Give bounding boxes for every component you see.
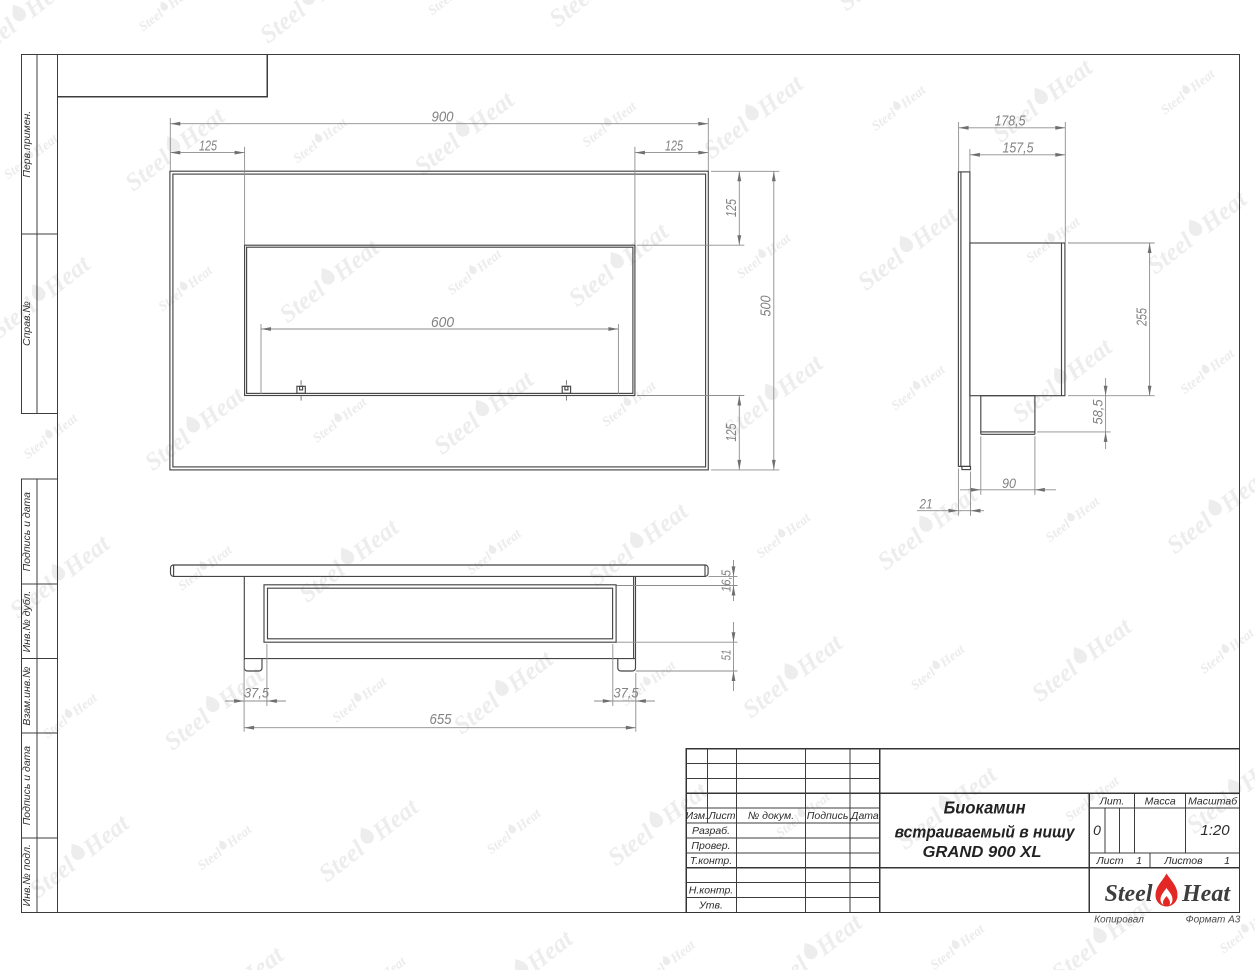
svg-text:125: 125 xyxy=(665,139,684,155)
svg-text:Инв.№ дубл.: Инв.№ дубл. xyxy=(21,591,33,653)
svg-text:Копировал: Копировал xyxy=(1094,915,1144,926)
svg-text:Формат А3: Формат А3 xyxy=(1186,915,1241,926)
svg-text:Масса: Масса xyxy=(1145,795,1176,807)
svg-text:900: 900 xyxy=(432,109,455,126)
svg-text:Биокамин: Биокамин xyxy=(944,798,1026,818)
svg-text:Н.контр.: Н.контр. xyxy=(689,885,733,897)
svg-text:Инв.№ подл.: Инв.№ подл. xyxy=(21,844,33,906)
svg-text:125: 125 xyxy=(724,423,740,442)
svg-text:Справ.№: Справ.№ xyxy=(21,301,33,346)
svg-text:GRAND 900 XL: GRAND 900 XL xyxy=(923,844,1042,861)
svg-text:встраиваемый в нишу: встраиваемый в нишу xyxy=(895,824,1076,842)
svg-text:Изм.: Изм. xyxy=(686,810,708,822)
svg-text:0: 0 xyxy=(1093,822,1101,838)
svg-text:51: 51 xyxy=(718,650,733,661)
svg-text:Перв.примен.: Перв.примен. xyxy=(21,111,33,178)
svg-text:37,5: 37,5 xyxy=(614,685,639,701)
svg-text:Провер.: Провер. xyxy=(691,840,730,852)
svg-text:Steel: Steel xyxy=(1105,881,1153,907)
svg-text:Heat: Heat xyxy=(1181,881,1231,907)
svg-text:Подпись и дата: Подпись и дата xyxy=(21,746,33,826)
svg-text:Подпись и дата: Подпись и дата xyxy=(21,492,33,572)
svg-text:1: 1 xyxy=(1224,855,1230,867)
svg-text:Лист: Лист xyxy=(707,810,735,822)
svg-text:1:20: 1:20 xyxy=(1200,822,1230,839)
svg-text:Масштаб: Масштаб xyxy=(1188,795,1238,807)
svg-text:Взам.инв.№: Взам.инв.№ xyxy=(21,666,33,725)
svg-text:Лист: Лист xyxy=(1095,855,1123,867)
svg-text:Утв.: Утв. xyxy=(698,900,723,912)
svg-text:37,5: 37,5 xyxy=(244,685,269,701)
svg-text:16,5: 16,5 xyxy=(719,570,733,592)
svg-text:Т.контр.: Т.контр. xyxy=(690,855,732,867)
svg-text:255: 255 xyxy=(1134,307,1150,326)
svg-text:21: 21 xyxy=(919,496,933,512)
svg-text:Дата: Дата xyxy=(850,810,879,822)
svg-text:Листов: Листов xyxy=(1163,855,1203,867)
svg-text:№ докум.: № докум. xyxy=(748,810,794,822)
svg-text:1: 1 xyxy=(1136,855,1142,867)
svg-text:157,5: 157,5 xyxy=(1003,141,1035,157)
svg-text:125: 125 xyxy=(724,198,740,217)
svg-text:90: 90 xyxy=(1002,475,1016,491)
svg-text:Разраб.: Разраб. xyxy=(692,825,730,837)
svg-text:125: 125 xyxy=(199,139,218,155)
svg-text:178,5: 178,5 xyxy=(995,114,1027,130)
svg-text:Лит.: Лит. xyxy=(1099,795,1125,807)
svg-text:58,5: 58,5 xyxy=(1090,399,1105,424)
svg-text:Подпись: Подпись xyxy=(807,810,849,822)
svg-text:500: 500 xyxy=(758,295,775,317)
svg-text:655: 655 xyxy=(430,711,453,728)
svg-text:600: 600 xyxy=(431,314,455,331)
